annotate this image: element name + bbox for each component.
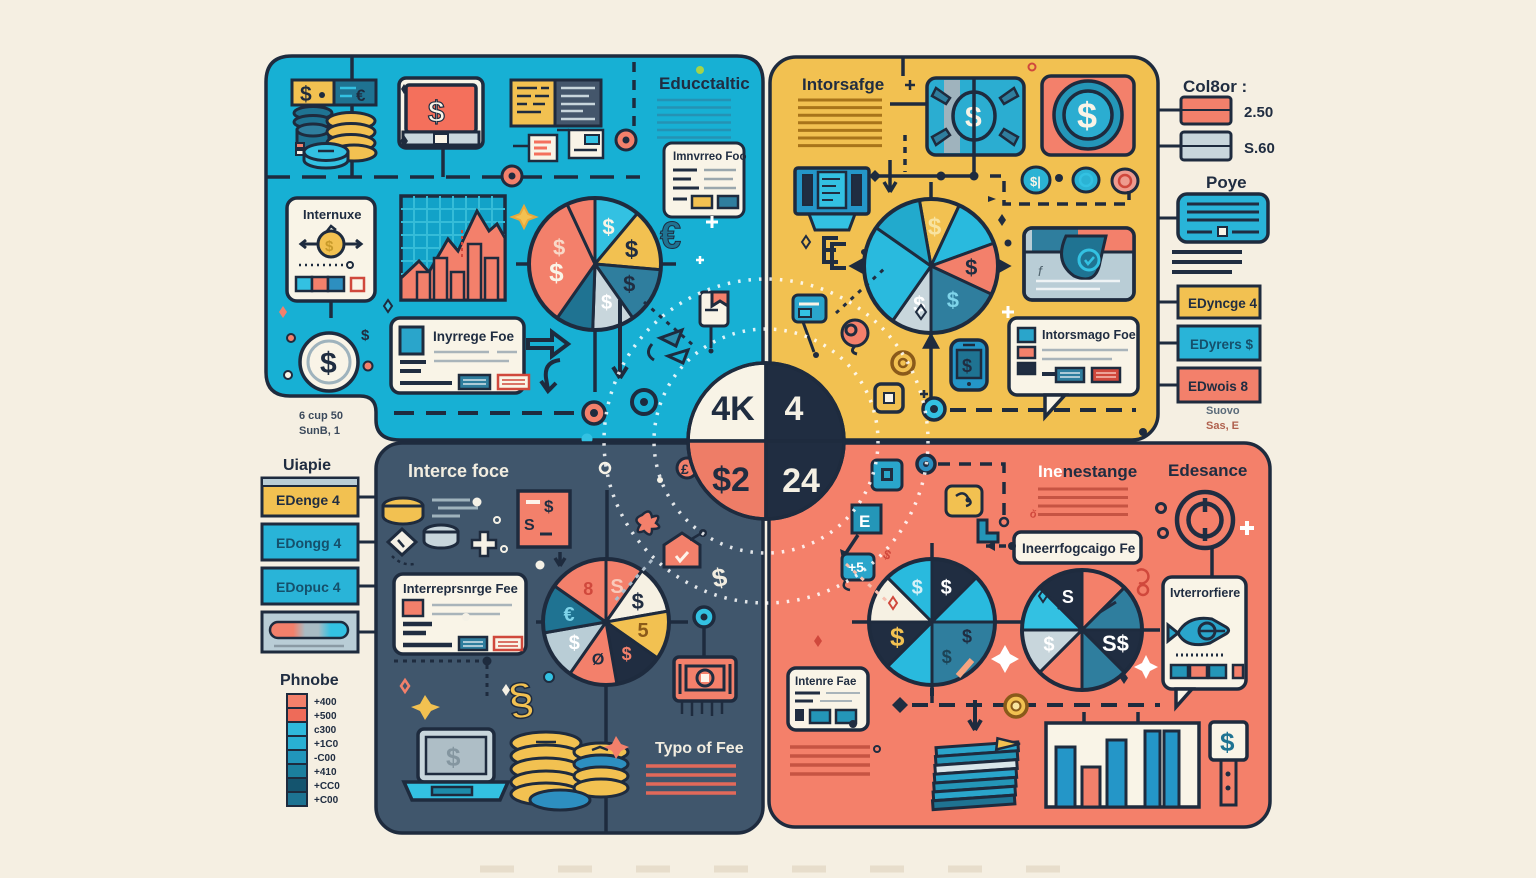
svg-text:$: $ xyxy=(446,742,461,772)
svg-text:6 cup 50: 6 cup 50 xyxy=(299,410,343,422)
svg-text:c300: c300 xyxy=(314,725,337,736)
svg-text:Interreprsnrge Fee: Interreprsnrge Fee xyxy=(403,581,518,596)
svg-text:-C00: -C00 xyxy=(314,753,336,764)
svg-text:Typo of Fee: Typo of Fee xyxy=(655,740,744,757)
svg-text:Uiapie: Uiapie xyxy=(283,457,331,474)
svg-text:$: $ xyxy=(962,627,972,647)
svg-text:Ivterrorfiere: Ivterrorfiere xyxy=(1170,586,1240,600)
svg-text:$: $ xyxy=(1220,727,1235,757)
svg-text:$: $ xyxy=(601,292,612,314)
svg-text:+C00: +C00 xyxy=(314,795,339,806)
svg-text:4: 4 xyxy=(785,390,804,428)
svg-text:$2: $2 xyxy=(712,461,750,499)
svg-text:+400: +400 xyxy=(314,697,337,708)
svg-text:$: $ xyxy=(602,215,614,240)
svg-text:EDopuc 4: EDopuc 4 xyxy=(276,579,341,595)
svg-text:SunB, 1: SunB, 1 xyxy=(299,425,340,437)
svg-text:Sas, E: Sas, E xyxy=(1206,420,1239,432)
svg-text:Suovo: Suovo xyxy=(1206,405,1240,417)
svg-text:EDwois 8: EDwois 8 xyxy=(1188,379,1249,394)
svg-text:Ineerrfogcaigo Fe: Ineerrfogcaigo Fe xyxy=(1022,541,1136,556)
svg-text:$: $ xyxy=(325,238,334,255)
svg-text:$: $ xyxy=(942,647,952,667)
svg-text:€: € xyxy=(563,604,574,626)
svg-text:E: E xyxy=(859,512,870,531)
svg-text:Intenre Fae: Intenre Fae xyxy=(795,676,856,688)
svg-text:$: $ xyxy=(300,83,312,106)
svg-text:S$: S$ xyxy=(1102,631,1129,656)
svg-text:Inenestange: Inenestange xyxy=(1038,462,1137,481)
svg-text:S: S xyxy=(610,576,623,598)
svg-text:$: $ xyxy=(553,235,565,260)
svg-text:$: $ xyxy=(623,272,635,297)
svg-text:$: $ xyxy=(320,347,337,380)
svg-text:Col8or :: Col8or : xyxy=(1183,77,1247,96)
svg-text:EDenge 4: EDenge 4 xyxy=(276,492,340,508)
svg-text:$: $ xyxy=(544,497,554,516)
svg-text:$: $ xyxy=(962,356,972,376)
svg-text:$: $ xyxy=(912,577,923,599)
svg-text:$|: $| xyxy=(1030,174,1041,189)
svg-text:Inyrrege Foe: Inyrrege Foe xyxy=(433,329,515,344)
svg-text:Intorsmago Foe: Intorsmago Foe xyxy=(1042,328,1136,342)
svg-text:$: $ xyxy=(947,287,959,312)
svg-text:+1C0: +1C0 xyxy=(314,739,339,750)
svg-text:Edesance: Edesance xyxy=(1168,461,1247,480)
svg-text:S.60: S.60 xyxy=(1244,140,1275,157)
svg-text:$: $ xyxy=(361,327,370,344)
svg-text:Intorsafge: Intorsafge xyxy=(802,75,884,94)
svg-text:Ø: Ø xyxy=(592,652,604,669)
svg-text:24: 24 xyxy=(782,462,820,500)
svg-text:$: $ xyxy=(913,292,925,317)
svg-text:EDyrers $: EDyrers $ xyxy=(1190,337,1254,352)
svg-text:$: $ xyxy=(928,213,942,240)
svg-text:$: $ xyxy=(965,255,977,280)
svg-text:+500: +500 xyxy=(314,711,337,722)
svg-text:$: $ xyxy=(625,236,639,263)
svg-text:8: 8 xyxy=(583,579,593,599)
svg-text:$: $ xyxy=(890,622,905,652)
svg-text:€: € xyxy=(660,215,681,257)
svg-text:$: $ xyxy=(1043,634,1054,656)
svg-text:5: 5 xyxy=(637,620,648,642)
svg-text:+CC0: +CC0 xyxy=(314,781,340,792)
svg-text:+410: +410 xyxy=(314,767,337,778)
svg-text:2.50: 2.50 xyxy=(1244,104,1273,121)
svg-text:4K: 4K xyxy=(711,390,755,428)
svg-text:$: $ xyxy=(1077,95,1097,136)
svg-text:€: € xyxy=(356,86,366,105)
svg-text:$: $ xyxy=(569,633,580,655)
svg-text:$: $ xyxy=(632,589,644,614)
svg-text:Phnobe: Phnobe xyxy=(280,672,339,689)
svg-text:EDyncge 4: EDyncge 4 xyxy=(1188,296,1258,311)
svg-text:Imnvrreo Foo: Imnvrreo Foo xyxy=(673,151,746,163)
svg-text:£: £ xyxy=(681,461,689,477)
svg-text:Interce foce: Interce foce xyxy=(408,461,509,481)
svg-text:Educctaltic: Educctaltic xyxy=(659,74,750,93)
svg-text:Poye: Poye xyxy=(1206,173,1247,192)
svg-text:S: S xyxy=(524,517,535,534)
svg-text:$: $ xyxy=(428,96,445,129)
svg-text:EDongg 4: EDongg 4 xyxy=(276,535,342,551)
svg-text:$: $ xyxy=(941,577,952,599)
svg-text:S: S xyxy=(1062,587,1074,607)
svg-text:$: $ xyxy=(549,257,564,287)
svg-text:Internuxe: Internuxe xyxy=(303,207,362,222)
svg-text:$: $ xyxy=(622,644,632,664)
